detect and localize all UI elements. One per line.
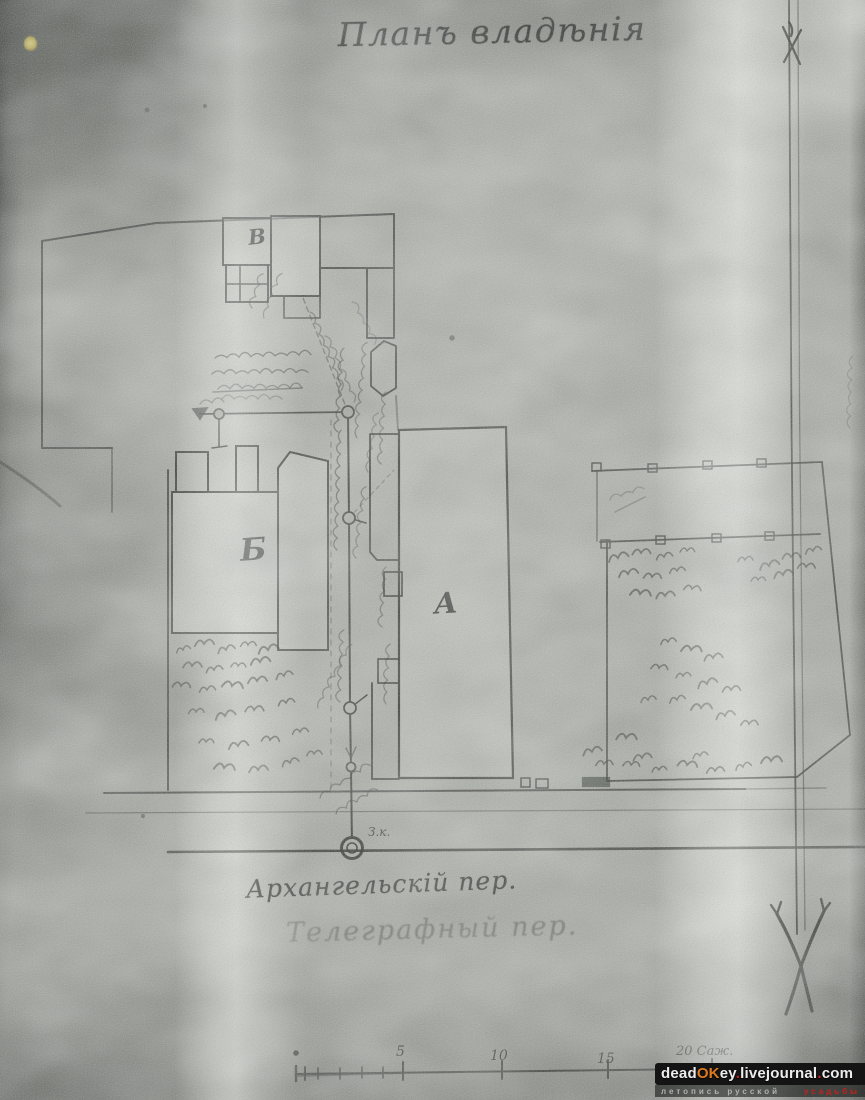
well-label: З.к.	[368, 825, 390, 839]
street-lines	[86, 788, 865, 852]
watermark-tagline-gray: летопись русской	[661, 1087, 780, 1096]
scale-tick-label-5: 5	[396, 1044, 405, 1060]
scanned-plan-photo: Планъ владѣнія В Б А З.к. Архангельскій …	[0, 0, 865, 1100]
right-garden-plot	[592, 459, 850, 781]
watermark: deadOKey.livejournal.com летопись русско…	[655, 1063, 865, 1097]
building-label-b: Б	[239, 531, 268, 569]
watermark-tagline-red: усадьбы	[804, 1087, 860, 1096]
upper-building-complex	[42, 214, 398, 512]
scale-end-label: 20 Саж.	[676, 1044, 733, 1059]
scale-tick-label-15: 15	[597, 1051, 615, 1067]
building-label-a: А	[433, 585, 458, 620]
watermark-part: OK	[697, 1065, 720, 1082]
plan-title: Планъ владѣнія	[322, 8, 663, 54]
watermark-part: ey	[720, 1065, 736, 1082]
watermark-part: com	[822, 1065, 853, 1082]
watermark-part: dead	[661, 1065, 697, 1082]
watermark-part: livejournal	[740, 1065, 817, 1082]
photo-creases	[0, 105, 454, 818]
left-house-building	[168, 446, 328, 790]
watermark-site-url: deadOKey.livejournal.com	[655, 1063, 865, 1085]
boundary-mark-bottom-icon	[771, 899, 830, 1014]
scale-tick-label-10: 10	[490, 1048, 508, 1064]
road-boundary-line	[789, 0, 805, 934]
building-label-v: В	[247, 223, 267, 250]
main-house-building	[370, 427, 609, 788]
watermark-tagline: летопись русской усадьбы	[655, 1085, 865, 1097]
